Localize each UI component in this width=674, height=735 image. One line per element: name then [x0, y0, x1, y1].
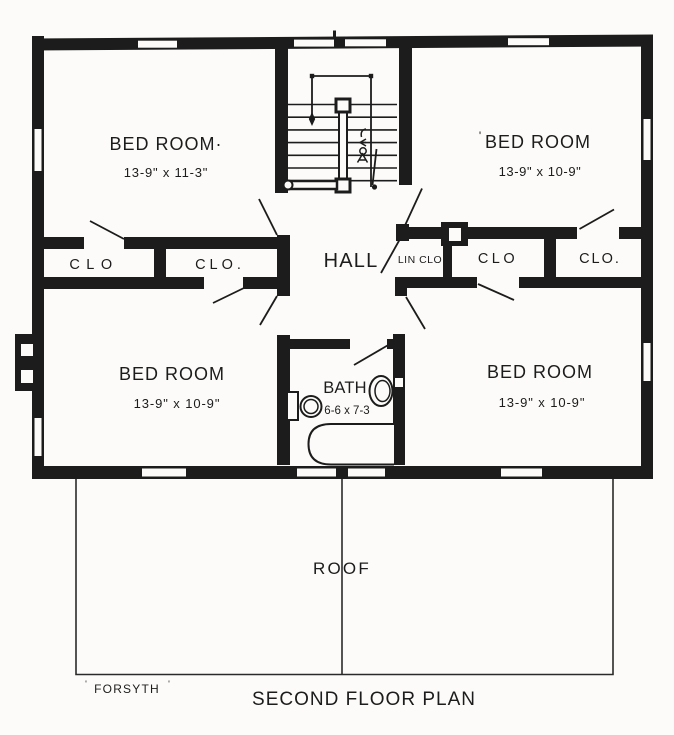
svg-text:': ' [85, 679, 87, 689]
svg-text:CLO.: CLO. [195, 257, 245, 273]
svg-text:BATH: BATH [323, 379, 367, 397]
svg-text:CLO: CLO [478, 251, 518, 267]
svg-text:13-9" x 10-9": 13-9" x 10-9" [134, 396, 221, 411]
svg-text:SECOND FLOOR PLAN: SECOND FLOOR PLAN [252, 689, 476, 710]
svg-text:BED ROOM: BED ROOM [487, 362, 593, 382]
svg-text:13-9" x 11-3": 13-9" x 11-3" [124, 165, 208, 180]
svg-text:FORSYTH: FORSYTH [94, 682, 160, 696]
svg-text:CLO: CLO [69, 257, 118, 273]
svg-text:13-9" x 10-9": 13-9" x 10-9" [499, 395, 586, 410]
svg-text:BED ROOM: BED ROOM [119, 364, 225, 384]
svg-text:BED ROOM·: BED ROOM· [109, 134, 222, 154]
svg-text:13-9" x 10-9": 13-9" x 10-9" [499, 164, 582, 179]
svg-text:6-6 x 7-3: 6-6 x 7-3 [324, 405, 369, 417]
svg-text:HALL: HALL [324, 250, 379, 272]
svg-text:ROOF: ROOF [313, 559, 371, 578]
svg-text:': ' [168, 679, 170, 689]
svg-text:': ' [479, 129, 481, 143]
svg-text:CLO.: CLO. [579, 251, 621, 267]
svg-text:BED ROOM: BED ROOM [485, 132, 591, 152]
svg-text:LIN CLO: LIN CLO [398, 254, 442, 266]
